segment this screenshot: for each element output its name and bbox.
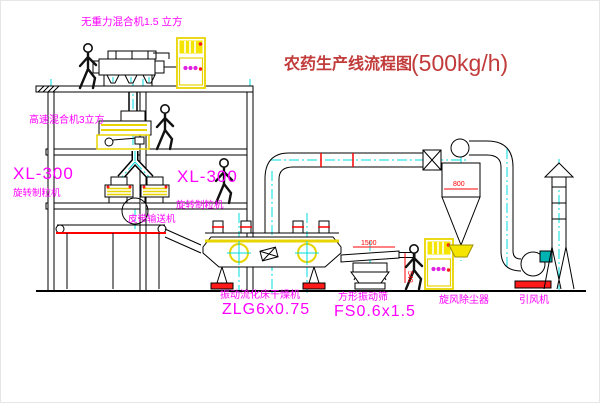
dim-sieve-height: 540	[406, 271, 413, 283]
label-granulator-right-model: XL-300	[177, 167, 238, 186]
page-title: 农药生产线流程图	[283, 54, 412, 73]
label-sieve-name: 方形振动筛	[338, 290, 388, 303]
label-high-speed-mixer: 高速混合机3立方	[29, 113, 105, 126]
control-cabinet-top	[177, 38, 205, 88]
label-gravity-mixer: 无重力混合机1.5 立方	[81, 15, 183, 28]
cad-drawing: 无重力混合机1.5 立方 农药生产线流程图 (500kg/h) 高速混合机3立方…	[1, 1, 600, 403]
induced-draft-fan	[515, 251, 552, 288]
label-granulator-left-model: XL-300	[13, 164, 74, 183]
flow-diagram-canvas: 无重力混合机1.5 立方 农药生产线流程图 (500kg/h) 高速混合机3立方…	[0, 0, 600, 403]
duct-dryer-to-cyclone	[265, 150, 441, 233]
person-figure-floor2	[157, 105, 173, 149]
label-belt-conveyor: 皮带输送机	[128, 213, 176, 225]
label-dryer-model: ZLG6x0.75	[222, 301, 310, 318]
dim-sieve-length: 1500	[361, 240, 377, 247]
belt-conveyor	[56, 225, 201, 289]
gravity-mixer	[93, 51, 177, 86]
dim-cyclone-width: 800	[453, 181, 465, 188]
page-title-capacity: (500kg/h)	[411, 50, 508, 76]
label-granulator-left-name: 旋转制粒机	[13, 187, 61, 199]
square-sieve	[341, 247, 415, 289]
label-cyclone: 旋风除尘器	[439, 293, 489, 306]
label-sieve-model: FS0.6x1.5	[334, 303, 416, 320]
label-fan: 引风机	[519, 293, 549, 306]
label-granulator-right-name: 旋转制粒机	[176, 199, 224, 211]
control-cabinet-bottom	[425, 239, 453, 289]
label-dryer-name: 振动流化床干燥机	[220, 288, 300, 301]
